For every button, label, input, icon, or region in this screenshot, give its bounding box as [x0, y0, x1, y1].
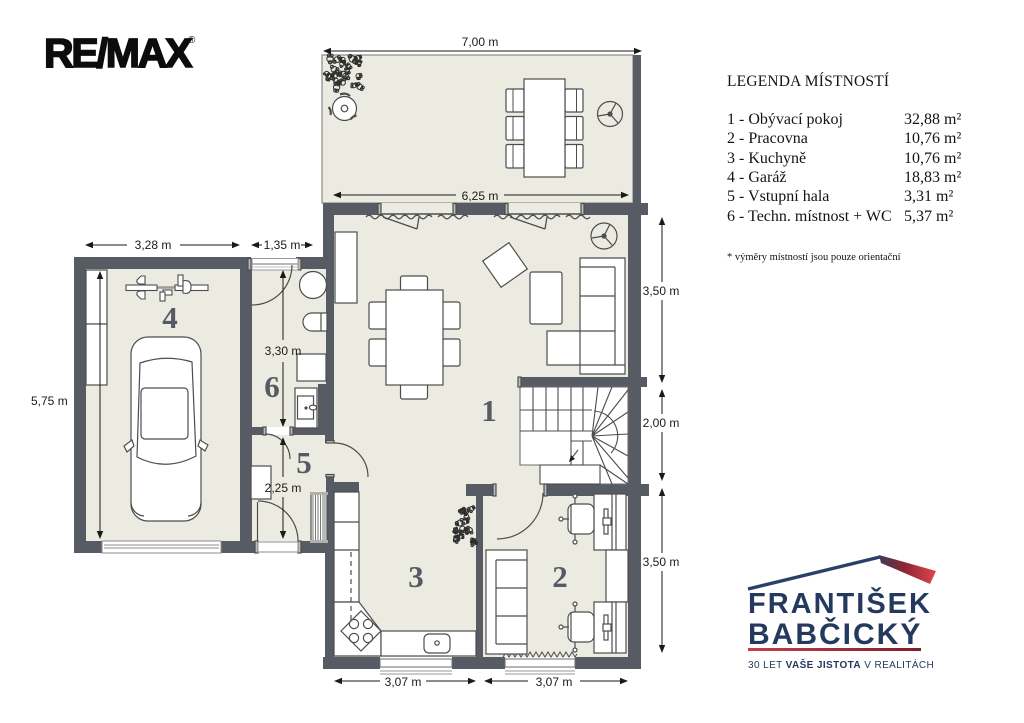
svg-text:2,00 m: 2,00 m — [643, 416, 680, 430]
svg-text:3,28 m: 3,28 m — [135, 238, 172, 252]
svg-text:5,75 m: 5,75 m — [31, 394, 68, 408]
svg-text:2,25 m: 2,25 m — [265, 481, 302, 495]
svg-text:5: 5 — [296, 445, 312, 480]
svg-text:2 - Pracovna: 2 - Pracovna — [727, 130, 808, 147]
svg-text:1 - Obývací pokoj: 1 - Obývací pokoj — [727, 111, 843, 128]
svg-text:10,76 m²: 10,76 m² — [904, 130, 961, 147]
svg-text:BABČICKÝ: BABČICKÝ — [748, 617, 922, 651]
svg-text:RE/MAX: RE/MAX — [44, 30, 192, 76]
svg-text:4: 4 — [162, 300, 178, 335]
svg-text:30 LET VAŠE JISTOTA V REALITÁC: 30 LET VAŠE JISTOTA V REALITÁCH — [748, 658, 934, 671]
svg-text:18,83 m²: 18,83 m² — [904, 169, 961, 186]
svg-text:3 - Kuchyně: 3 - Kuchyně — [727, 150, 806, 167]
svg-text:3,07 m: 3,07 m — [536, 675, 573, 689]
svg-text:10,76 m²: 10,76 m² — [904, 150, 961, 167]
svg-text:1: 1 — [481, 393, 497, 428]
svg-text:5 - Vstupní hala: 5 - Vstupní hala — [727, 188, 829, 205]
svg-text:FRANTIŠEK: FRANTIŠEK — [748, 586, 932, 620]
svg-text:6: 6 — [264, 369, 280, 404]
svg-text:7,00 m: 7,00 m — [462, 35, 499, 49]
svg-text:®: ® — [188, 35, 196, 46]
svg-text:32,88 m²: 32,88 m² — [904, 111, 961, 128]
svg-text:3,30 m: 3,30 m — [265, 344, 302, 358]
svg-text:3,31 m²: 3,31 m² — [904, 188, 953, 205]
svg-text:5,37 m²: 5,37 m² — [904, 208, 953, 225]
svg-text:* výměry místností jsou pouze: * výměry místností jsou pouze orientační — [727, 252, 901, 263]
svg-text:3,50 m: 3,50 m — [643, 555, 680, 569]
svg-text:3,50 m: 3,50 m — [643, 284, 680, 298]
svg-text:1,35 m: 1,35 m — [264, 238, 301, 252]
svg-text:2: 2 — [552, 559, 568, 594]
svg-text:LEGENDA MÍSTNOSTÍ: LEGENDA MÍSTNOSTÍ — [727, 73, 889, 90]
svg-text:6,25 m: 6,25 m — [462, 189, 499, 203]
svg-text:6 - Techn. místnost + WC: 6 - Techn. místnost + WC — [727, 208, 892, 225]
svg-text:3,07 m: 3,07 m — [385, 675, 422, 689]
svg-text:4 - Garáž: 4 - Garáž — [727, 169, 787, 186]
svg-text:3: 3 — [408, 559, 424, 594]
